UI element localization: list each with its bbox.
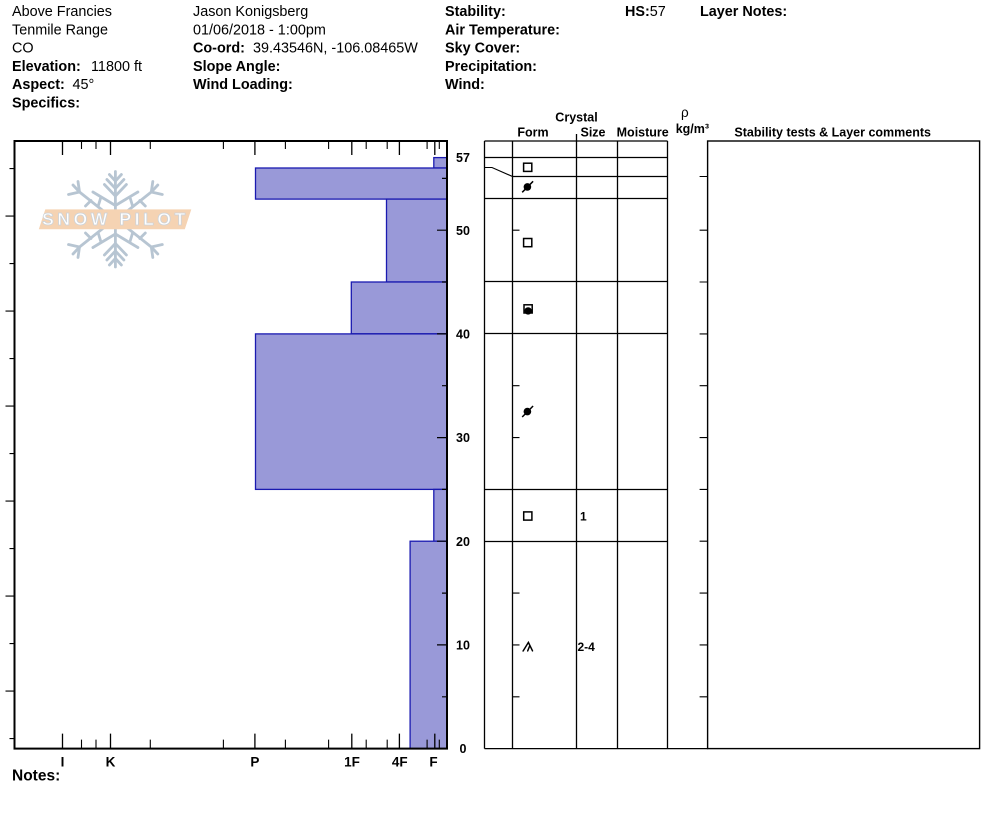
svg-text:Above Francies: Above Francies (12, 4, 112, 20)
svg-text:Jason Konigsberg: Jason Konigsberg (193, 4, 308, 20)
svg-text:HS:57: HS:57 (625, 4, 666, 20)
svg-text:4F: 4F (392, 755, 408, 770)
svg-text:ρ: ρ (681, 105, 689, 120)
svg-text:kg/m³: kg/m³ (676, 122, 709, 136)
svg-text:Wind:: Wind: (445, 77, 485, 93)
svg-text:10: 10 (456, 639, 470, 653)
svg-text:P: P (250, 755, 259, 770)
svg-text:Stability tests & Layer commen: Stability tests & Layer comments (734, 126, 931, 140)
svg-text:Layer Notes:: Layer Notes: (700, 4, 787, 20)
svg-text:Air Temperature:: Air Temperature: (445, 22, 560, 38)
svg-text:40: 40 (456, 328, 470, 342)
svg-text:K: K (106, 755, 116, 770)
svg-text:I: I (61, 755, 65, 770)
svg-text:01/06/2018 - 1:00pm: 01/06/2018 - 1:00pm (193, 22, 326, 38)
svg-text:SNOW PILOT: SNOW PILOT (42, 209, 189, 229)
svg-text:Sky Cover:: Sky Cover: (445, 41, 520, 57)
svg-text:Moisture: Moisture (617, 126, 669, 140)
svg-text:Slope Angle:: Slope Angle: (193, 59, 280, 75)
svg-text:1: 1 (580, 509, 587, 523)
svg-text:Specifics:: Specifics: (12, 96, 80, 112)
svg-text:Stability:: Stability: (445, 4, 506, 20)
svg-text:Tenmile Range: Tenmile Range (12, 22, 108, 38)
svg-text:30: 30 (456, 431, 470, 445)
svg-text:F: F (429, 755, 437, 770)
svg-text:CO: CO (12, 41, 34, 57)
svg-text:Aspect:45°: Aspect:45° (12, 77, 94, 93)
svg-text:50: 50 (456, 224, 470, 238)
svg-text:1F: 1F (344, 755, 360, 770)
svg-text:2-4: 2-4 (578, 640, 596, 654)
svg-text:Crystal: Crystal (555, 111, 597, 125)
svg-text:Form: Form (517, 126, 548, 140)
svg-text:Precipitation:: Precipitation: (445, 59, 537, 75)
svg-text:Notes:: Notes: (12, 768, 60, 785)
svg-text:Size: Size (580, 126, 605, 140)
svg-text:57: 57 (456, 151, 470, 165)
svg-text:20: 20 (456, 535, 470, 549)
svg-text:Wind Loading:: Wind Loading: (193, 77, 293, 93)
svg-text:0: 0 (460, 742, 467, 756)
svg-text:Co-ord:39.43546N, -106.08465W: Co-ord:39.43546N, -106.08465W (193, 41, 418, 57)
svg-text:Elevation:11800 ft: Elevation:11800 ft (12, 59, 142, 75)
